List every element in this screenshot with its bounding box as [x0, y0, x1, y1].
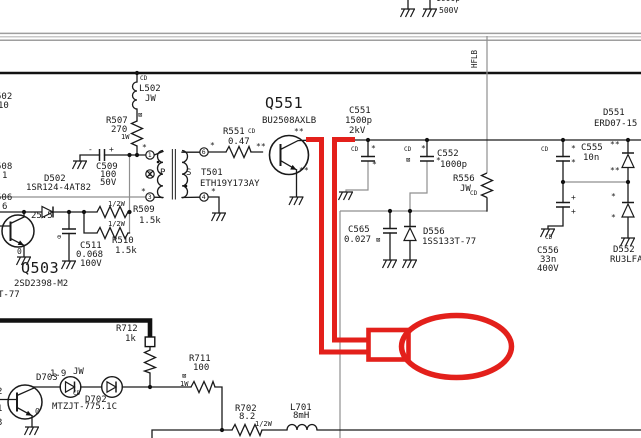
label-r551-ref: R551	[223, 128, 245, 137]
label-c509-rating: 50V	[100, 179, 116, 188]
edge-partial-label: 10	[0, 102, 9, 111]
label-r509-value: 1.5k	[139, 217, 161, 226]
label-t501-ref: T501	[201, 169, 223, 178]
edge-partial-label: 1	[0, 405, 2, 414]
label-l502-value: JW	[145, 95, 156, 104]
boxed-x-mark: ⊠	[182, 373, 186, 380]
label-d551-ref: D551	[603, 109, 625, 118]
chip-mark: CD	[73, 391, 80, 397]
label-c551-value: 1500p	[345, 117, 372, 126]
label-r510-value: 1.5k	[115, 247, 137, 256]
capacitor-c556	[556, 203, 570, 208]
t501-pin-number: 4	[202, 194, 206, 201]
edge-partial-label: 6	[2, 203, 7, 212]
star-mark: **	[610, 167, 620, 175]
star-mark: **	[256, 143, 266, 151]
label-c511-rating: 100V	[80, 260, 102, 269]
polarity-plus: +	[571, 208, 576, 216]
star-mark: *	[611, 193, 616, 201]
t501-pin-number: 2	[148, 171, 152, 178]
diode-d551	[622, 155, 634, 168]
voltage-annotation: 0	[35, 408, 40, 416]
label-r711-rating: 1W	[180, 381, 188, 388]
label-d556-part: 1SS133T-77	[422, 238, 476, 247]
star-mark: *	[421, 145, 426, 153]
diode-d552	[622, 204, 634, 217]
schematic-page: 1000p 500V HFLB CD L502 JW ⊠ R507 270 1W…	[0, 0, 641, 438]
label-l502-ref: L502	[139, 85, 161, 94]
t501-terminals	[146, 148, 208, 201]
star-mark: *	[142, 144, 147, 152]
label-c565-value: 0.027	[344, 236, 371, 245]
diode-d556	[404, 228, 416, 241]
label-q551-ref: Q551	[265, 96, 303, 111]
label-d703-ref: D703	[36, 374, 58, 383]
label-r712-value: 1k	[125, 335, 136, 344]
t501-pin-number: 1	[148, 152, 152, 159]
resistor-r711	[191, 382, 215, 393]
net-label-hflb: HFLB	[471, 50, 479, 68]
label-c556-rating: 400V	[537, 265, 559, 274]
connector-square	[145, 337, 155, 347]
t501-pin-number: 6	[202, 149, 206, 156]
resistor-r551	[226, 147, 251, 158]
top-bus-rails	[0, 33, 641, 73]
label-r507-rating: 1W	[121, 134, 129, 141]
label-c552-value: 1000p	[440, 161, 467, 170]
inductor-l502	[133, 82, 138, 109]
chip-mark: CD	[545, 235, 552, 241]
resistor-r509	[97, 207, 128, 218]
label-d702-part: MTZJT-775.1C	[52, 403, 117, 412]
label-r712-ref: R712	[116, 325, 138, 334]
chip-mark: CD	[140, 76, 147, 82]
edge-partial-label: T-77	[0, 291, 20, 300]
label-t501-part: ETH19Y173AY	[200, 180, 260, 189]
star-mark: *	[141, 188, 146, 196]
label-c551-rating: 2kV	[349, 127, 365, 136]
star-mark: **	[610, 141, 620, 149]
star-mark: **	[299, 167, 309, 175]
chip-mark: CD	[404, 147, 411, 153]
polarity-plus: +	[109, 146, 114, 154]
label-r551-value: 0.47	[228, 138, 250, 147]
label-d703-value: JW	[73, 368, 84, 377]
voltage-annotation: 25.5	[31, 212, 53, 221]
capacitor-c565	[383, 229, 397, 234]
star-mark: *	[372, 161, 377, 169]
star-mark: *	[371, 145, 376, 153]
edge-partial-label: 2	[0, 388, 2, 397]
label-d556-ref: D556	[423, 228, 445, 237]
t501-pin-number: 3	[148, 194, 152, 201]
star-mark: *	[571, 159, 576, 167]
label-c565-ref: C565	[348, 226, 370, 235]
chip-mark: CD	[248, 129, 255, 135]
star-mark: *	[436, 157, 441, 165]
label-d552-ref: D552	[613, 246, 635, 255]
boxed-x-mark: ⊠	[376, 237, 380, 244]
polarity-circled-minus: ⊖	[57, 234, 61, 241]
partial-cap-rating: 500V	[439, 7, 458, 15]
resistor-r507	[132, 121, 143, 146]
label-r702-value: 8.2	[239, 413, 255, 422]
label-c555-value: 10n	[583, 154, 599, 163]
polarity-minus: -	[88, 146, 93, 154]
label-r510-rating: 1/2W	[108, 221, 125, 228]
capacitor-c509	[100, 149, 105, 161]
label-r711-value: 100	[193, 364, 209, 373]
label-r556-ref: R556	[453, 175, 475, 184]
capacitor-c552	[420, 157, 434, 162]
label-d502-part: 1SR124-4AT82	[26, 184, 91, 193]
inductor-l701	[287, 425, 317, 430]
label-q551-part: BU2508AXLB	[262, 117, 316, 126]
gray-wires	[0, 36, 628, 438]
label-d551-part: ERD07-15	[594, 120, 637, 129]
capacitor-c511	[62, 229, 76, 234]
label-q503-part: 2SD2398-M2	[14, 280, 68, 289]
partial-cap-value: 1000p	[436, 0, 460, 3]
star-mark: *	[571, 145, 576, 153]
star-mark: *	[211, 188, 216, 196]
chip-mark: CD	[351, 147, 358, 153]
polarity-plus: +	[571, 194, 576, 202]
resistor-r712	[145, 350, 156, 373]
star-mark: *	[611, 214, 616, 222]
boxed-x-mark: ⊠	[406, 157, 410, 164]
star-mark: **	[294, 128, 304, 136]
label-l701-value: 8mH	[293, 412, 309, 421]
schematic-drawing	[0, 0, 641, 438]
label-r509-ref: R509	[133, 206, 155, 215]
t501-core	[172, 149, 175, 200]
edge-partial-label: 3	[0, 419, 2, 428]
label-r702-rating: 1/2W	[255, 421, 272, 428]
label-q503-ref: Q503	[21, 261, 59, 276]
label-r510-ref: R510	[112, 237, 134, 246]
diode-d702	[107, 382, 116, 392]
t501-primary-label: P	[160, 169, 165, 178]
voltage-annotation: 0	[17, 248, 22, 256]
capacitor-c555	[556, 157, 570, 162]
chip-mark: CD	[541, 147, 548, 153]
chip-mark: CD	[470, 191, 477, 197]
star-mark: *	[210, 142, 215, 150]
boxed-x-mark: ⊠	[138, 112, 142, 119]
resistor-r556	[482, 173, 493, 198]
label-d552-part: RU3LFA1	[610, 256, 641, 265]
t501-secondary-label: S	[186, 169, 191, 178]
edge-partial-label: 1	[2, 172, 7, 181]
label-c555-ref: C555	[581, 144, 603, 153]
label-r509-rating: 1/2W	[108, 201, 125, 208]
annotation-ellipse	[402, 316, 512, 378]
label-c551-ref: C551	[349, 107, 371, 116]
